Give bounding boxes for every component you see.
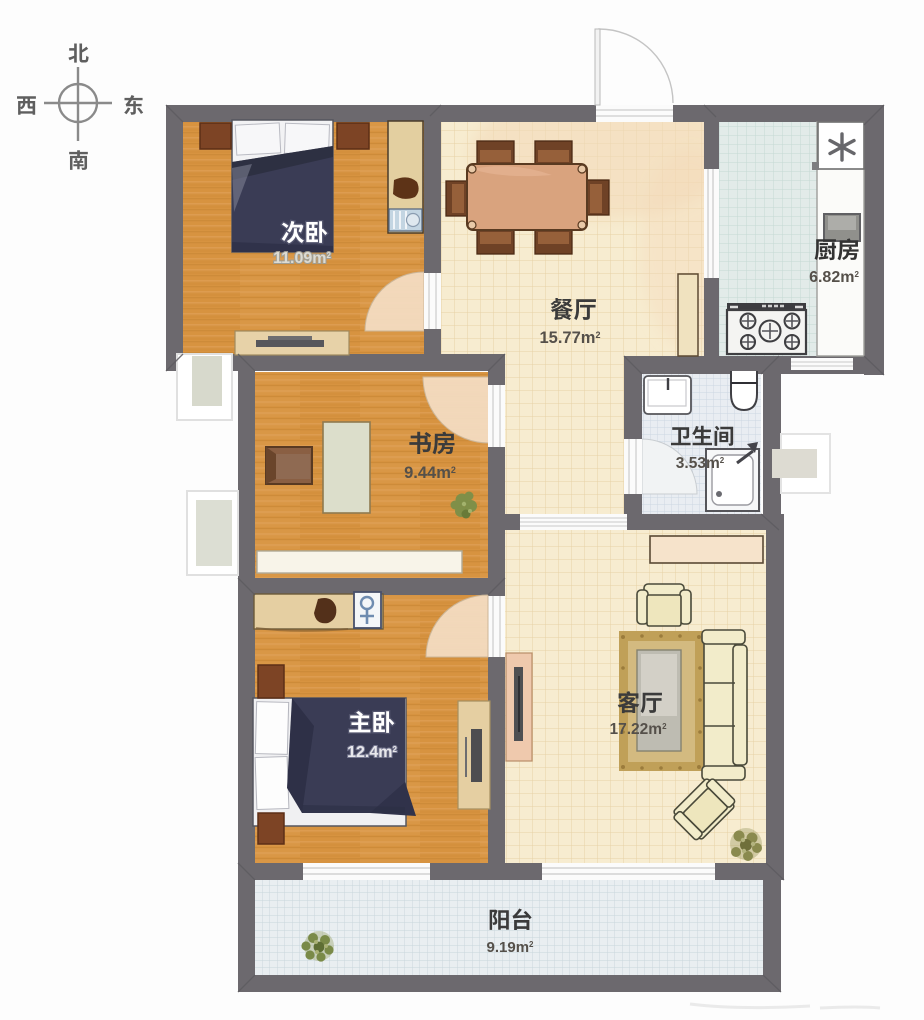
svg-text:6.82m2: 6.82m2	[809, 269, 859, 286]
svg-text:11.09m2: 11.09m2	[273, 250, 331, 267]
svg-text:17.22m2: 17.22m2	[609, 721, 667, 738]
svg-text:3.53m2: 3.53m2	[676, 455, 725, 472]
svg-text:9.44m2: 9.44m2	[404, 464, 456, 482]
svg-text:12.4m2: 12.4m2	[347, 744, 397, 761]
svg-text:15.77m2: 15.77m2	[540, 329, 601, 347]
svg-text:9.19m2: 9.19m2	[487, 939, 535, 956]
